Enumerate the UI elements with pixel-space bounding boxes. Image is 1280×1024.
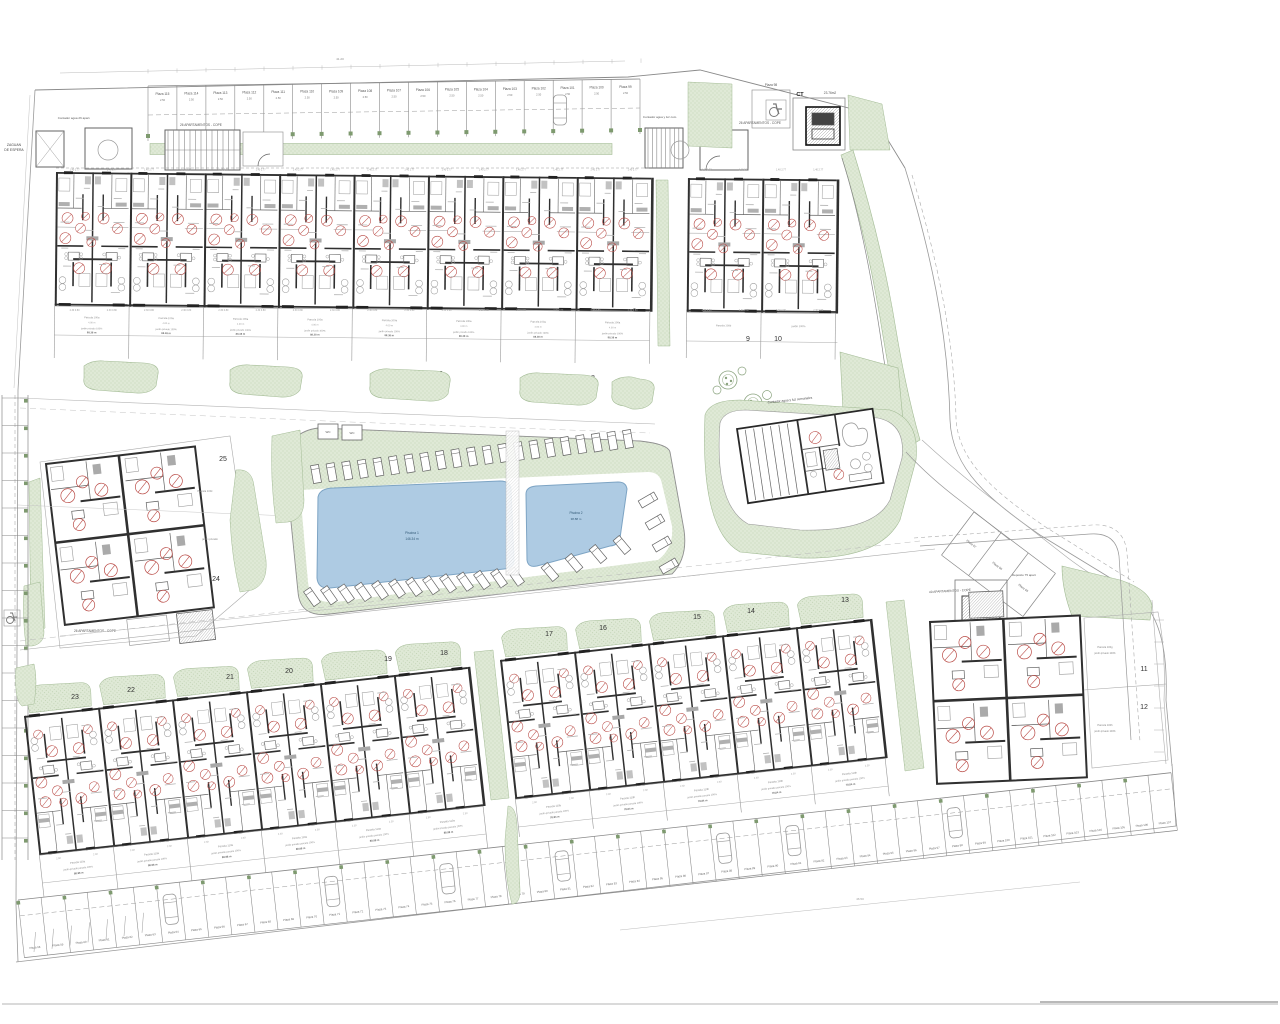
svg-text:10: 10 xyxy=(774,336,782,343)
svg-text:1.40 2.77: 1.40 2.77 xyxy=(144,169,155,172)
svg-text:4.00 m: 4.00 m xyxy=(237,323,244,326)
svg-text:2.30 0.80: 2.30 0.80 xyxy=(256,309,267,312)
svg-text:1.40 2.77: 1.40 2.77 xyxy=(479,169,490,172)
svg-text:Plaza 112: Plaza 112 xyxy=(242,91,256,95)
svg-text:jardin privado 100%: jardin privado 100% xyxy=(229,329,252,332)
svg-text:Parcela 100a: Parcela 100a xyxy=(605,320,621,324)
svg-text:4.00 m: 4.00 m xyxy=(386,324,393,327)
svg-text:38.88 m: 38.88 m xyxy=(571,517,582,521)
svg-text:Plaza 101: Plaza 101 xyxy=(561,86,575,90)
svg-text:2.50: 2.50 xyxy=(623,91,629,95)
svg-text:Plaza 109: Plaza 109 xyxy=(329,89,343,93)
svg-text:25: 25 xyxy=(219,456,227,463)
svg-text:146.34 m: 146.34 m xyxy=(405,537,419,541)
svg-text:88.38 m: 88.38 m xyxy=(87,330,97,334)
svg-text:1.40 2.77: 1.40 2.77 xyxy=(330,169,341,172)
svg-text:Parcela 100b: Parcela 100b xyxy=(716,323,732,327)
svg-text:Plaza 110: Plaza 110 xyxy=(300,90,314,94)
svg-text:Plaza 108: Plaza 108 xyxy=(358,89,372,93)
svg-text:Parcela 100a: Parcela 100a xyxy=(382,318,398,322)
svg-text:WC: WC xyxy=(350,431,356,435)
svg-text:1.40 2.77: 1.40 2.77 xyxy=(702,169,713,172)
svg-text:4.00 m: 4.00 m xyxy=(311,323,318,326)
svg-text:23: 23 xyxy=(71,694,79,701)
svg-text:11: 11 xyxy=(1140,666,1147,673)
svg-text:1.40 2.77: 1.40 2.77 xyxy=(628,169,639,172)
svg-text:2.50: 2.50 xyxy=(420,94,426,98)
svg-text:2.30 0.80: 2.30 0.80 xyxy=(702,309,713,312)
svg-text:4.00 m: 4.00 m xyxy=(609,326,616,329)
svg-text:2.30 0.80: 2.30 0.80 xyxy=(293,309,304,312)
svg-text:Plaza 98: Plaza 98 xyxy=(765,83,778,87)
svg-text:jardin privado 100%: jardin privado 100% xyxy=(155,328,178,331)
svg-text:4.00 m: 4.00 m xyxy=(534,326,541,329)
svg-text:2.30 0.80: 2.30 0.80 xyxy=(813,309,824,312)
svg-text:jardin privado 100%: jardin privado 100% xyxy=(1093,652,1116,655)
svg-text:1.40 2.77: 1.40 2.77 xyxy=(256,169,267,172)
svg-text:jardin privado 100%: jardin privado 100% xyxy=(452,331,475,334)
svg-text:1.40 2.77: 1.40 2.77 xyxy=(404,169,415,172)
svg-text:Plaza 99: Plaza 99 xyxy=(619,85,632,89)
svg-text:1.40 2.77: 1.40 2.77 xyxy=(553,169,564,172)
svg-text:88.38 m: 88.38 m xyxy=(384,333,394,337)
svg-text:Parcela 100h: Parcela 100h xyxy=(1097,723,1113,727)
svg-text:Piscina 2: Piscina 2 xyxy=(570,511,583,515)
svg-text:15: 15 xyxy=(693,614,701,621)
svg-text:88.38 m: 88.38 m xyxy=(161,331,171,335)
svg-text:Parcela 100a: Parcela 100a xyxy=(159,316,175,320)
svg-text:Plaza 106: Plaza 106 xyxy=(416,88,430,92)
svg-text:26 APARTAMENTOS - COPE: 26 APARTAMENTOS - COPE xyxy=(180,123,222,127)
svg-text:Parcela 100a: Parcela 100a xyxy=(531,320,547,324)
svg-text:jardin privado 100%: jardin privado 100% xyxy=(303,329,326,332)
svg-text:Piscina 1: Piscina 1 xyxy=(405,531,419,535)
svg-text:2.50: 2.50 xyxy=(247,97,253,101)
svg-text:Plaza 104: Plaza 104 xyxy=(474,87,488,91)
svg-text:2.30 0.80: 2.30 0.80 xyxy=(107,309,118,312)
svg-text:CT: CT xyxy=(796,92,804,98)
svg-text:2.50: 2.50 xyxy=(594,92,600,96)
svg-text:2.50: 2.50 xyxy=(391,95,397,99)
svg-text:Parcela 100a: Parcela 100a xyxy=(84,315,100,319)
svg-text:Plaza 115: Plaza 115 xyxy=(156,92,170,96)
svg-text:4.00 m: 4.00 m xyxy=(162,322,169,325)
svg-text:Parcela 100c: Parcela 100c xyxy=(197,489,213,493)
svg-text:2.50: 2.50 xyxy=(363,95,369,99)
svg-text:2.50: 2.50 xyxy=(189,97,195,101)
svg-text:Plaza 102: Plaza 102 xyxy=(532,86,546,90)
svg-text:Plaza 113: Plaza 113 xyxy=(213,91,227,95)
svg-text:2.30 0.80: 2.30 0.80 xyxy=(330,309,341,312)
svg-text:2.50: 2.50 xyxy=(160,98,166,102)
svg-text:Plaza 100: Plaza 100 xyxy=(590,86,604,90)
svg-text:jardin privado 100%: jardin privado 100% xyxy=(601,332,624,335)
svg-text:1.40 2.77: 1.40 2.77 xyxy=(367,169,378,172)
svg-text:WC: WC xyxy=(326,430,332,434)
svg-text:9: 9 xyxy=(746,336,750,343)
svg-text:1.40 2.77: 1.40 2.77 xyxy=(442,169,453,172)
svg-text:4.00 m: 4.00 m xyxy=(460,325,467,328)
svg-text:17: 17 xyxy=(545,631,553,638)
svg-text:88.38 m: 88.38 m xyxy=(310,332,320,336)
svg-text:Plaza 111: Plaza 111 xyxy=(271,90,285,94)
svg-text:jardin privado 100%: jardin privado 100% xyxy=(378,330,401,333)
svg-text:1.40 2.77: 1.40 2.77 xyxy=(516,169,527,172)
svg-text:jardin privado 100%: jardin privado 100% xyxy=(1093,730,1116,733)
svg-text:24: 24 xyxy=(212,576,220,583)
svg-text:22: 22 xyxy=(127,687,135,694)
svg-text:Parcela 100a: Parcela 100a xyxy=(456,319,472,323)
svg-text:21: 21 xyxy=(226,674,234,681)
svg-text:20: 20 xyxy=(285,668,293,675)
svg-text:23.76m2: 23.76m2 xyxy=(824,91,837,95)
svg-text:1.40 2.77: 1.40 2.77 xyxy=(107,169,118,172)
svg-text:Plaza 103: Plaza 103 xyxy=(503,87,517,91)
svg-text:jardin privado 100%: jardin privado 100% xyxy=(526,332,549,335)
svg-text:1.40 2.77: 1.40 2.77 xyxy=(813,169,824,172)
svg-text:2.50: 2.50 xyxy=(565,92,571,96)
svg-text:41.20: 41.20 xyxy=(336,57,344,61)
svg-text:2.50: 2.50 xyxy=(478,93,484,97)
svg-text:1.40 2.77: 1.40 2.77 xyxy=(181,169,192,172)
svg-text:14: 14 xyxy=(747,608,755,615)
svg-text:2.30 0.80: 2.30 0.80 xyxy=(590,309,601,312)
svg-text:Plaza 114: Plaza 114 xyxy=(184,91,198,95)
svg-text:18: 18 xyxy=(440,650,448,657)
svg-text:jardin privado: jardin privado xyxy=(201,537,218,541)
svg-text:1.40 2.77: 1.40 2.77 xyxy=(776,169,787,172)
svg-text:1.40 2.77: 1.40 2.77 xyxy=(218,169,229,172)
svg-text:1.40 2.77: 1.40 2.77 xyxy=(590,169,601,172)
svg-text:13: 13 xyxy=(841,597,849,604)
svg-text:88.38 m: 88.38 m xyxy=(533,335,543,339)
svg-text:16: 16 xyxy=(599,625,607,632)
svg-text:2.50: 2.50 xyxy=(507,93,513,97)
svg-text:12: 12 xyxy=(1140,704,1148,711)
svg-text:ZAGUAN: ZAGUAN xyxy=(7,143,22,147)
svg-text:2.30 0.80: 2.30 0.80 xyxy=(181,309,192,312)
svg-text:Plaza 107: Plaza 107 xyxy=(387,89,401,93)
svg-text:2.50: 2.50 xyxy=(334,95,340,99)
svg-text:jardin privado 100%: jardin privado 100% xyxy=(80,327,103,330)
svg-text:88.38 m: 88.38 m xyxy=(459,334,469,338)
svg-text:26 APARTAMENTOS - COPE: 26 APARTAMENTOS - COPE xyxy=(739,121,781,125)
svg-text:2.50: 2.50 xyxy=(276,96,282,100)
svg-text:88.38 m: 88.38 m xyxy=(236,332,246,336)
svg-text:Deposito 75 apart: Deposito 75 apart xyxy=(1012,573,1036,577)
svg-text:Plaza 105: Plaza 105 xyxy=(445,88,459,92)
svg-text:2.50: 2.50 xyxy=(305,96,311,100)
svg-text:46.50: 46.50 xyxy=(856,897,864,901)
svg-text:Contador agua 26 apart.: Contador agua 26 apart. xyxy=(58,116,91,120)
svg-text:2.50: 2.50 xyxy=(536,92,542,96)
svg-text:1.40 2.77: 1.40 2.77 xyxy=(739,169,750,172)
svg-text:2.50: 2.50 xyxy=(218,97,224,101)
svg-text:4.00 m: 4.00 m xyxy=(88,321,95,324)
svg-text:2.30 0.80: 2.30 0.80 xyxy=(70,309,81,312)
svg-text:1.40 2.77: 1.40 2.77 xyxy=(70,169,81,172)
svg-text:Parcela 100a: Parcela 100a xyxy=(233,317,249,321)
svg-text:19: 19 xyxy=(384,656,392,663)
svg-text:88.38 m: 88.38 m xyxy=(608,335,618,339)
svg-text:2.30 0.80: 2.30 0.80 xyxy=(367,309,378,312)
svg-text:Parcela 100g: Parcela 100g xyxy=(1097,645,1113,649)
svg-text:2.30 0.80: 2.30 0.80 xyxy=(776,309,787,312)
svg-text:DE ESPERA: DE ESPERA xyxy=(4,148,24,152)
svg-text:2.30 0.80: 2.30 0.80 xyxy=(739,309,750,312)
svg-text:Parcela 100a: Parcela 100a xyxy=(307,317,323,321)
svg-text:2.50: 2.50 xyxy=(449,94,455,98)
svg-text:2.30 0.80: 2.30 0.80 xyxy=(144,309,155,312)
svg-text:2.30 0.80: 2.30 0.80 xyxy=(218,309,229,312)
svg-text:2.30 0.80: 2.30 0.80 xyxy=(479,309,490,312)
svg-text:1.40 2.77: 1.40 2.77 xyxy=(293,169,304,172)
svg-text:Contador agua y luz com.: Contador agua y luz com. xyxy=(643,115,677,119)
svg-text:jardin 100%: jardin 100% xyxy=(791,324,806,328)
